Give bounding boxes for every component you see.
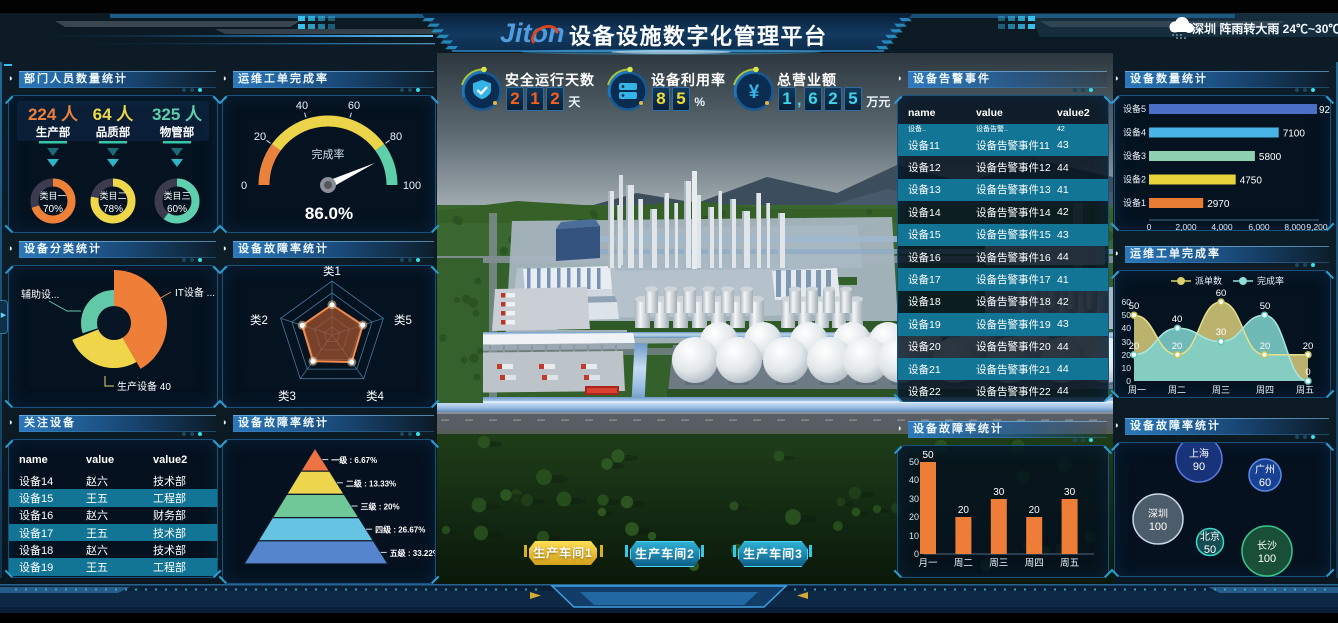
svg-text:四级 : 26.67%: 四级 : 26.67% <box>375 525 425 535</box>
svg-text:周二: 周二 <box>954 558 973 569</box>
svg-text:30: 30 <box>909 494 919 504</box>
svg-text:一级 : 6.67%: 一级 : 6.67% <box>331 455 377 465</box>
svg-text:0: 0 <box>1305 367 1310 378</box>
svg-text:IT设备 ...: IT设备 ... <box>175 286 215 299</box>
svg-text:周二: 周二 <box>1168 385 1186 395</box>
svg-text:三级 : 20%: 三级 : 20% <box>361 502 400 512</box>
svg-text:60: 60 <box>1259 477 1271 489</box>
svg-text:周三: 周三 <box>1212 385 1230 395</box>
svg-text:周五: 周五 <box>1296 385 1314 395</box>
svg-text:64 人: 64 人 <box>93 105 135 124</box>
svg-text:224 人: 224 人 <box>28 105 79 124</box>
svg-text:7100: 7100 <box>1283 129 1306 140</box>
svg-text:20: 20 <box>909 512 919 522</box>
svg-text:80: 80 <box>390 131 402 143</box>
svg-text:2,000: 2,000 <box>1175 222 1197 232</box>
svg-text:30: 30 <box>1216 327 1227 338</box>
svg-text:类1: 类1 <box>323 266 341 278</box>
svg-text:78%: 78% <box>103 204 123 215</box>
svg-text:100: 100 <box>1149 521 1167 533</box>
svg-text:50: 50 <box>1204 544 1216 556</box>
svg-text:类2: 类2 <box>250 313 268 327</box>
svg-text:50: 50 <box>1129 301 1140 312</box>
svg-text:生产部: 生产部 <box>36 125 71 139</box>
svg-text:设备4: 设备4 <box>1123 127 1146 138</box>
svg-text:北京: 北京 <box>1200 530 1220 543</box>
svg-text:物管部: 物管部 <box>160 125 195 139</box>
svg-text:5800: 5800 <box>1259 152 1282 163</box>
svg-text:长沙: 长沙 <box>1257 540 1277 552</box>
svg-text:30: 30 <box>993 487 1005 498</box>
svg-text:70%: 70% <box>43 204 63 215</box>
svg-text:40: 40 <box>909 475 919 485</box>
svg-text:20: 20 <box>254 131 266 143</box>
svg-text:设备2: 设备2 <box>1123 174 1146 185</box>
svg-text:60: 60 <box>348 100 360 112</box>
svg-text:派单数: 派单数 <box>1195 275 1222 286</box>
svg-text:4,000: 4,000 <box>1211 222 1233 232</box>
svg-text:90: 90 <box>1193 461 1205 473</box>
svg-text:40: 40 <box>1172 314 1183 325</box>
svg-text:类目一: 类目一 <box>39 190 66 201</box>
svg-text:类目三: 类目三 <box>163 190 190 201</box>
svg-text:上海: 上海 <box>1189 447 1209 460</box>
svg-text:周三: 周三 <box>989 558 1008 569</box>
svg-text:50: 50 <box>909 457 919 467</box>
svg-text:月一: 月一 <box>918 558 938 569</box>
svg-text:深圳: 深圳 <box>1148 508 1168 520</box>
svg-text:完成率: 完成率 <box>312 147 345 161</box>
svg-text:2970: 2970 <box>1207 199 1230 210</box>
svg-text:60%: 60% <box>167 204 187 215</box>
svg-text:类5: 类5 <box>394 313 412 327</box>
svg-text:8,000: 8,000 <box>1284 222 1306 232</box>
svg-text:广州: 广州 <box>1255 464 1275 476</box>
svg-text:10: 10 <box>909 531 919 541</box>
svg-text:周四: 周四 <box>1256 385 1274 395</box>
svg-text:50: 50 <box>922 450 934 461</box>
svg-text:100: 100 <box>403 180 421 192</box>
svg-text:周一: 周一 <box>1128 385 1146 395</box>
svg-text:类3: 类3 <box>278 389 296 403</box>
svg-text:4750: 4750 <box>1240 176 1263 187</box>
svg-text:0: 0 <box>241 180 247 192</box>
svg-text:周五: 周五 <box>1060 558 1079 569</box>
svg-text:完成率: 完成率 <box>1257 275 1284 286</box>
svg-text:20: 20 <box>1303 341 1314 352</box>
svg-text:五级 : 33.22%: 五级 : 33.22% <box>390 548 435 558</box>
svg-text:10: 10 <box>1122 363 1132 373</box>
svg-text:40: 40 <box>1122 323 1132 333</box>
svg-text:20: 20 <box>1029 505 1041 516</box>
svg-text:20: 20 <box>1129 341 1140 352</box>
svg-text:30: 30 <box>1064 487 1076 498</box>
svg-text:二级 : 13.33%: 二级 : 13.33% <box>346 478 396 488</box>
svg-text:辅助设...: 辅助设... <box>21 288 59 301</box>
svg-text:20: 20 <box>958 505 970 516</box>
svg-text:6,000: 6,000 <box>1248 222 1270 232</box>
svg-text:0: 0 <box>1147 222 1152 232</box>
svg-text:50: 50 <box>1260 301 1271 312</box>
svg-text:100: 100 <box>1258 553 1276 565</box>
svg-text:设备3: 设备3 <box>1123 150 1146 161</box>
svg-text:¥: ¥ <box>749 82 760 103</box>
svg-text:60: 60 <box>1216 288 1227 299</box>
svg-text:20: 20 <box>1172 341 1183 352</box>
svg-text:20: 20 <box>1260 341 1271 352</box>
svg-text:周四: 周四 <box>1025 558 1044 569</box>
svg-text:类目二: 类目二 <box>99 190 126 201</box>
svg-text:Jiton: Jiton <box>500 18 565 48</box>
svg-text:设备5: 设备5 <box>1123 103 1146 114</box>
svg-text:设备1: 设备1 <box>1123 197 1146 208</box>
svg-text:品质部: 品质部 <box>96 125 131 139</box>
svg-text:40: 40 <box>296 100 308 112</box>
svg-text:生产设备 40: 生产设备 40 <box>117 380 171 393</box>
svg-text:325 人: 325 人 <box>152 105 203 124</box>
svg-text:类4: 类4 <box>366 389 384 403</box>
